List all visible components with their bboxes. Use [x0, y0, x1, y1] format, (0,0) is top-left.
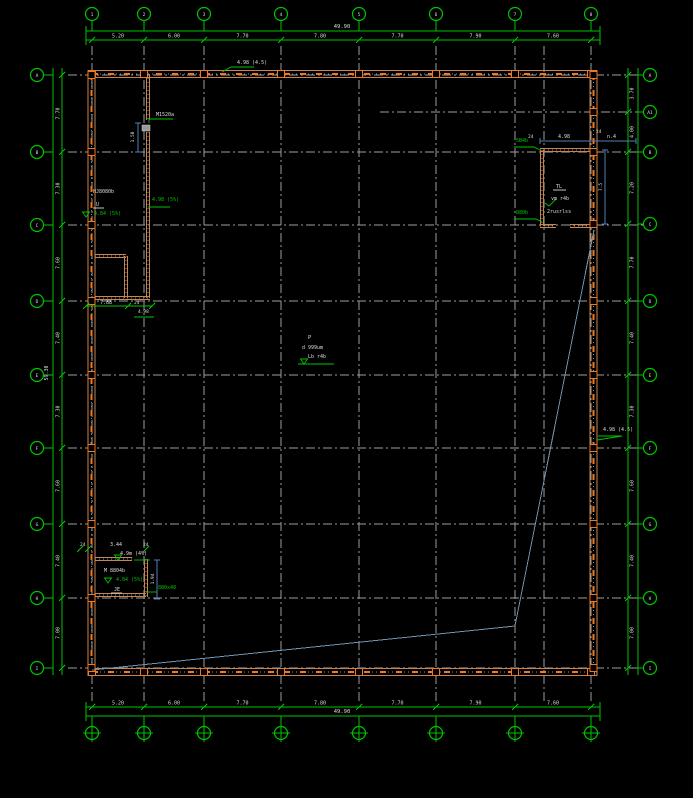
dimension-text: 7.40: [630, 332, 636, 344]
detail-dimension-text: 1.94: [150, 573, 156, 584]
dimension-text: 5.20: [112, 701, 124, 707]
column-marker: [141, 71, 148, 78]
annotation-text: 49.90: [334, 709, 351, 715]
annotation-text: 4.98 (5%): [152, 197, 179, 203]
dimension-text: 7.40: [630, 555, 636, 567]
column-marker: [356, 71, 363, 78]
column-marker: [201, 71, 208, 78]
grid-bubble-label: H: [649, 596, 652, 602]
annotation-text: 4.98 (4.5): [237, 60, 267, 66]
annotation-text: TL: [556, 184, 562, 190]
column-marker: [590, 72, 597, 79]
grid-bubble-label: 1: [91, 12, 94, 18]
grid-bubble-label: 3: [203, 12, 206, 18]
grid-bubble-label: 2: [143, 12, 146, 18]
dimension-text: 7.30: [56, 405, 62, 417]
column-marker: [88, 595, 95, 602]
annotation-text: 59.30: [44, 365, 50, 380]
dimension-text: 7.70: [630, 256, 636, 268]
column-marker: [88, 521, 95, 528]
cad-canvas: 15.2026.0037.7047.8057.7067.9077.6085.20…: [0, 0, 693, 798]
leader-line: [597, 436, 622, 440]
column-marker: [590, 595, 597, 602]
annotation-text: 4.9m (4%): [120, 551, 147, 557]
annotation-text: 49.90: [334, 24, 351, 30]
grid-bubble-label: 7: [514, 12, 517, 18]
leader-line: [514, 147, 540, 150]
dimension-text: 7.30: [630, 405, 636, 417]
dimension-text: 7.70: [236, 701, 248, 707]
column-marker: [278, 71, 285, 78]
annotation-text: 24: [528, 134, 534, 140]
dimension-text: 7.60: [547, 701, 559, 707]
annotation-text: 4.84 (5%): [116, 577, 143, 583]
grid-bubble-label: G: [36, 522, 39, 528]
dimension-text: 7.40: [56, 555, 62, 567]
dimension-text: 7.60: [56, 257, 62, 269]
dimension-text: 6.00: [168, 701, 180, 707]
column-marker: [141, 669, 148, 676]
annotation-text: n.4: [607, 134, 616, 140]
dimension-text: 7.00: [56, 627, 62, 639]
dimension-text: 7.60: [56, 480, 62, 492]
annotation-text: vm r4b: [551, 196, 569, 202]
dimension-text: 7.20: [630, 182, 636, 194]
leader-line: [514, 219, 542, 222]
annotation-text: 4.98 (4.5): [603, 427, 633, 433]
annotation-text: 4.98: [558, 134, 570, 140]
column-marker: [512, 71, 519, 78]
annotation-text: 880b: [516, 210, 528, 216]
grid-bubble-label: I: [36, 666, 39, 672]
cad-drawing: 15.2026.0037.7047.8057.7067.9077.6085.20…: [0, 0, 693, 798]
column-marker: [88, 372, 95, 379]
dimension-text: 6.00: [168, 34, 180, 40]
annotation-text: M 8804b: [104, 568, 125, 574]
annotation-text: 24: [596, 129, 602, 135]
column-marker: [88, 445, 95, 452]
annotation-text: 2rusrlss: [547, 209, 571, 215]
grid-bubble-label: F: [649, 446, 652, 452]
detail-dimension-text: 1.50: [130, 131, 136, 142]
column-marker: [590, 372, 597, 379]
annotation-text: M1520a: [156, 112, 174, 118]
level-marker: [301, 359, 308, 364]
column-marker: [590, 149, 597, 156]
diagonal-line: [92, 626, 515, 670]
annotation-text: 5B4b: [516, 138, 528, 144]
column-marker: [201, 669, 208, 676]
annotation-text: HJ8080b: [93, 189, 114, 195]
dimension-text: 7.00: [630, 627, 636, 639]
grid-bubble-label: A: [649, 73, 652, 79]
column-marker: [433, 669, 440, 676]
grid-bubble-label: C: [649, 222, 652, 228]
column-marker: [590, 665, 597, 672]
grid-bubble-label: H: [36, 596, 39, 602]
annotation-text: 24: [80, 542, 86, 548]
grid-bubble-label: A1: [647, 110, 653, 116]
grid-bubble-label: D: [649, 299, 652, 305]
level-marker: [105, 578, 112, 583]
dimension-text: 7.60: [630, 480, 636, 492]
dimension-text: 7.60: [547, 34, 559, 40]
dimension-text: 7.70: [391, 701, 403, 707]
dimension-text: 7.70: [236, 34, 248, 40]
column-marker: [88, 665, 95, 672]
annotation-text: Lb r4b: [308, 354, 326, 360]
grid-bubble-label: B: [649, 150, 652, 156]
annotation-text: 880x48: [158, 585, 176, 591]
grid-bubble-label: 4: [280, 12, 283, 18]
annotation-text: 24: [134, 300, 140, 306]
dimension-text: 7.30: [56, 182, 62, 194]
column-marker: [590, 445, 597, 452]
annotation-text: 4.84 (5%): [94, 211, 121, 217]
detail-dimension-text: 7.5: [598, 183, 604, 191]
column-marker: [590, 298, 597, 305]
grid-bubble-label: D: [36, 299, 39, 305]
grid-bubble-label: 5: [358, 12, 361, 18]
leader-line: [222, 67, 254, 72]
grid-bubble-label: 6: [435, 12, 438, 18]
annotation-text: JE: [114, 587, 120, 593]
column-marker: [356, 669, 363, 676]
grid-bubble-label: G: [649, 522, 652, 528]
column-marker: [433, 71, 440, 78]
dimension-text: 7.40: [56, 332, 62, 344]
dimension-text: 7.80: [314, 34, 326, 40]
column-marker: [88, 149, 95, 156]
column-marker: [512, 669, 519, 676]
dimension-text: 7.70: [391, 34, 403, 40]
column-marker: [88, 222, 95, 229]
grid-bubble-label: E: [36, 373, 39, 379]
dimension-text: 7.80: [314, 701, 326, 707]
annotation-text: 24: [143, 542, 149, 548]
annotation-text: 7.88: [100, 300, 112, 306]
annotation-text: d 999um: [302, 345, 323, 351]
grid-bubble-label: I: [649, 666, 652, 672]
column-marker: [590, 109, 597, 116]
annotation-text: 3.44: [110, 542, 122, 548]
grid-bubble-label: F: [36, 446, 39, 452]
dimension-text: 4.00: [630, 126, 636, 138]
column-marker: [88, 72, 95, 79]
column-marker: [590, 221, 597, 228]
grid-bubble-label: E: [649, 373, 652, 379]
dimension-text: 7.70: [56, 107, 62, 119]
grid-bubble-label: A: [36, 73, 39, 79]
column-marker: [590, 521, 597, 528]
grid-bubble-label: B: [36, 150, 39, 156]
dimension-text: 3.70: [630, 87, 636, 99]
leader-line: [149, 119, 173, 123]
dimension-text: 5.20: [112, 34, 124, 40]
annotation-text: P: [308, 335, 312, 341]
column-marker: [278, 669, 285, 676]
annotation-text: U: [96, 202, 99, 208]
diagonal-line: [515, 230, 594, 626]
annotation-text: 4.98: [138, 309, 149, 315]
grid-bubble-label: 8: [590, 12, 593, 18]
door-symbol: [142, 125, 150, 131]
dimension-text: 7.90: [469, 34, 481, 40]
grid-bubble-label: C: [36, 223, 39, 229]
dimension-text: 7.90: [469, 701, 481, 707]
